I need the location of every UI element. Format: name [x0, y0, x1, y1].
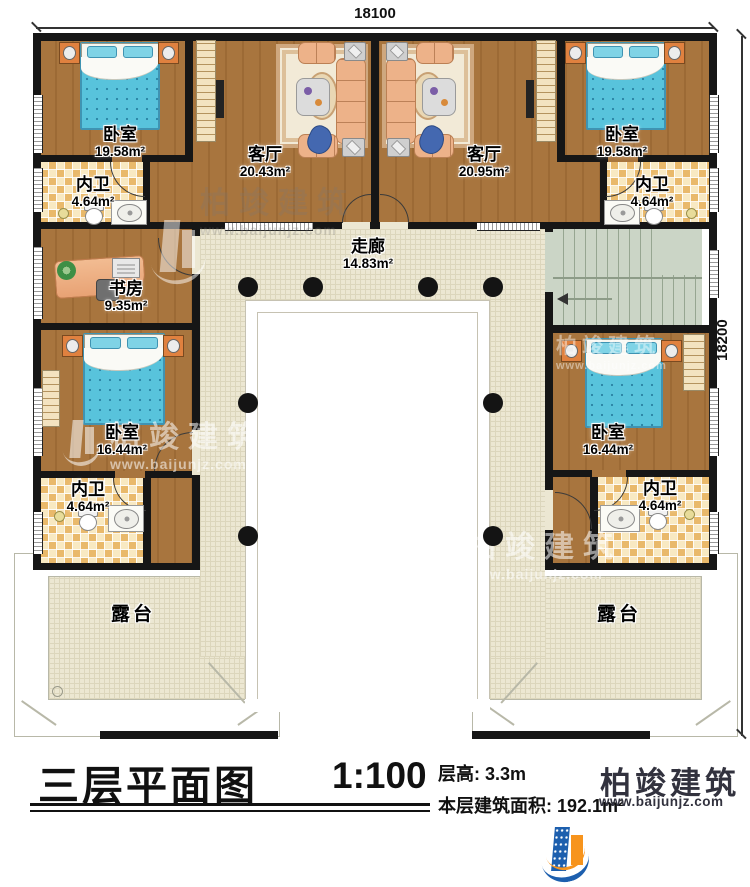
sink-basin: [117, 204, 142, 223]
company-logo-url: www.baijunjz.com: [599, 794, 724, 809]
room-label-bedroom-tl: 卧室 19.58m²: [95, 126, 145, 160]
room-label-bedroom-mr: 卧室 16.44m²: [583, 424, 633, 458]
sink-basin: [607, 509, 635, 529]
closet-bedroom-mr: [683, 334, 705, 391]
bed-pillow: [629, 46, 660, 58]
bed-bedroom-ml: [83, 333, 165, 425]
window-right-bath-tr: [709, 168, 719, 212]
bed-pillow: [593, 46, 624, 58]
bed-pillow: [591, 342, 621, 354]
room-label-bedroom-tr: 卧室 19.58m²: [597, 126, 647, 160]
column: [303, 277, 323, 297]
side-table: [387, 138, 410, 157]
bed-sheet: [84, 348, 164, 371]
dimension-right-label: 18200: [714, 300, 731, 380]
sink-bath-tl: [111, 200, 147, 225]
room-area: 4.64m²: [639, 499, 682, 514]
room-area: 19.58m²: [95, 145, 145, 160]
logo-swoosh-blue: [536, 832, 593, 887]
room-area: 20.95m²: [459, 165, 509, 180]
window-right-bath-br: [709, 512, 719, 554]
side-table: [342, 138, 365, 157]
window-left-bedroom-tl: [33, 95, 43, 153]
floor-area-text: 本层建筑面积: 192.1m²: [438, 792, 624, 818]
lower-floor-wall-right: [472, 731, 650, 739]
dimension-top-label: 18100: [340, 5, 410, 22]
wall-bedroom-tr: [557, 40, 565, 162]
armchair-living-l: [298, 42, 336, 64]
window-corridor-right: [477, 222, 540, 231]
title-underline-thin: [30, 810, 430, 812]
nightstand: [565, 42, 586, 64]
room-name: 卧室: [97, 424, 147, 443]
wall-bath-bl-top: [33, 471, 193, 478]
study-plant: [57, 261, 76, 280]
door-opening-bath-br: [592, 470, 626, 477]
walkway-left: [200, 300, 245, 657]
room-name: 内卫: [639, 480, 682, 499]
bed-pillow: [127, 337, 159, 349]
company-logo-icon: [543, 825, 595, 885]
room-name: 卧室: [583, 424, 633, 443]
room-name: 露台: [597, 605, 641, 626]
nightstand: [561, 340, 582, 362]
terrace-left-drain: [52, 686, 63, 697]
walkway-right: [490, 300, 545, 657]
bed-bedroom-mr: [585, 338, 663, 428]
column: [483, 277, 503, 297]
floor-lamp-bath-bl: [54, 511, 65, 522]
room-area: 4.64m²: [631, 195, 674, 210]
armchair-living-r: [416, 42, 454, 64]
room-label-bath-tl: 内卫 4.64m²: [72, 176, 115, 210]
column: [238, 393, 258, 413]
room-label-bedroom-ml: 卧室 16.44m²: [97, 424, 147, 458]
plan-scale: 1:100: [332, 755, 427, 797]
room-area: 9.35m²: [105, 299, 148, 314]
room-name: 卧室: [95, 126, 145, 145]
column: [238, 526, 258, 546]
wall-study-bottom: [33, 323, 200, 330]
lower-floor-wall-left: [100, 731, 278, 739]
coffee-table-living-l: [296, 78, 330, 116]
dimension-top-line: [36, 27, 714, 29]
sink-bath-bl: [108, 505, 144, 532]
door-opening-bedroom-mr: [545, 490, 553, 530]
room-label-terrace-r: 露台: [597, 605, 641, 626]
room-name: 客厅: [240, 146, 290, 165]
column: [483, 526, 503, 546]
sofa-living-l: [336, 58, 366, 144]
door-opening-living-l: [342, 222, 370, 229]
tv-living-l: [216, 80, 224, 118]
wall-living-divider: [371, 40, 379, 222]
sink-bath-br: [600, 505, 640, 532]
nightstand: [661, 340, 682, 362]
door-opening-living-r: [380, 222, 408, 229]
room-label-bath-tr: 内卫 4.64m²: [631, 176, 674, 210]
room-area: 16.44m²: [583, 443, 633, 458]
floor-lamp-bath-tl: [58, 208, 69, 219]
courtyard-railing-inner: [257, 312, 478, 699]
wall-bedroom-tl: [185, 40, 193, 162]
tv-living-r: [526, 80, 534, 118]
bed-sheet: [81, 57, 159, 80]
side-table: [344, 42, 366, 61]
bed-sheet: [587, 57, 665, 80]
room-area: 4.64m²: [67, 500, 110, 515]
window-left-study: [33, 247, 43, 319]
room-area: 16.44m²: [97, 443, 147, 458]
bed-sheet: [586, 353, 662, 376]
opening-corridor-stairs: [545, 232, 553, 292]
window-left-bath-bl: [33, 512, 43, 554]
door-opening-bath-bl: [115, 471, 145, 478]
wardrobe-living-l: [196, 40, 216, 142]
bed-pillow: [626, 342, 656, 354]
wall-stairs-bottom: [545, 325, 717, 333]
study-laptop: [112, 258, 140, 278]
room-label-corridor: 走廊 14.83m²: [343, 238, 393, 272]
room-label-study: 书房 9.35m²: [105, 280, 148, 314]
room-label-bath-bl: 内卫 4.64m²: [67, 481, 110, 515]
watermark-logo-icon: [150, 218, 210, 288]
column: [483, 393, 503, 413]
wall-left-wing-bottom: [33, 563, 200, 570]
room-name: 书房: [105, 280, 148, 299]
side-table: [386, 42, 408, 61]
bed-bedroom-tr: [586, 42, 666, 130]
title-underline-thick: [30, 803, 430, 806]
bed-pillow: [90, 337, 122, 349]
stair-direction-arrow: [557, 293, 568, 305]
floor-height-text: 层高: 3.3m: [438, 760, 526, 786]
room-name: 卧室: [597, 126, 647, 145]
room-label-living-l: 客厅 20.43m²: [240, 146, 290, 180]
nightstand: [664, 42, 685, 64]
bed-pillow: [123, 46, 154, 58]
window-right-stairs: [709, 250, 719, 298]
window-left-bath-tl: [33, 168, 43, 212]
nightstand: [62, 335, 83, 357]
dresser-bedroom-ml: [42, 370, 60, 427]
floor-lamp-bath-tr: [686, 208, 697, 219]
wardrobe-living-r: [536, 40, 556, 142]
room-area: 19.58m²: [597, 145, 647, 160]
column: [418, 277, 438, 297]
room-name: 内卫: [67, 481, 110, 500]
room-name: 内卫: [631, 176, 674, 195]
wall-bath-br-top: [553, 470, 710, 477]
window-corridor-left: [225, 222, 313, 231]
room-name: 露台: [111, 605, 155, 626]
stair-divider: [553, 277, 702, 279]
nightstand: [163, 335, 184, 357]
coffee-table-living-r: [422, 78, 456, 116]
stair-direction-line: [568, 298, 612, 300]
nightstand: [158, 42, 179, 64]
room-label-bath-br: 内卫 4.64m²: [639, 480, 682, 514]
window-right-bedroom-tr: [709, 95, 719, 153]
window-right-bedroom-mr: [709, 388, 719, 456]
door-opening-bedroom-ml: [192, 430, 200, 475]
room-name: 走廊: [343, 238, 393, 257]
wall-right-wing-bottom: [545, 563, 717, 570]
bed-pillow: [87, 46, 118, 58]
room-name: 内卫: [72, 176, 115, 195]
floor-lamp-bath-br: [684, 509, 695, 520]
room-name: 客厅: [459, 146, 509, 165]
column: [238, 277, 258, 297]
sofa-living-r: [386, 58, 416, 144]
room-label-terrace-l: 露台: [111, 605, 155, 626]
room-area: 14.83m²: [343, 257, 393, 272]
dimension-right-line: [741, 36, 743, 736]
sink-basin: [114, 509, 139, 529]
floorplan-page: { "dimensions": { "top": "18100", "right…: [0, 0, 750, 830]
room-area: 20.43m²: [240, 165, 290, 180]
room-area: 4.64m²: [72, 195, 115, 210]
stair-landing: [660, 229, 702, 275]
room-label-living-r: 客厅 20.95m²: [459, 146, 509, 180]
bed-bedroom-tl: [80, 42, 160, 130]
nightstand: [59, 42, 80, 64]
